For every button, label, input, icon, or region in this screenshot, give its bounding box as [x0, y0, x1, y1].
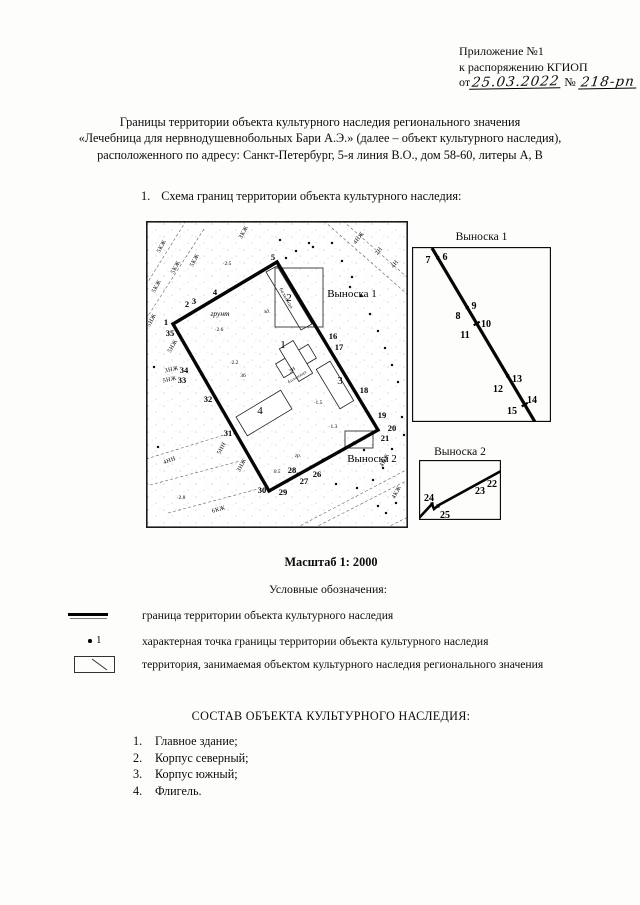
callout2-title: Выноска 2	[419, 446, 501, 458]
boundary-point-marker	[215, 398, 218, 401]
callout-point-label: 12	[493, 384, 503, 395]
callout-point-label: 23	[475, 486, 485, 497]
micro-label: грунт	[210, 309, 230, 318]
boundary-point-marker	[234, 432, 237, 435]
legend-item-point: характерная точка границы территории объ…	[142, 635, 488, 648]
boundary-point-marker	[322, 459, 325, 462]
section-number: 1.	[141, 189, 150, 203]
micro-label: ·2.6	[215, 327, 224, 333]
section-text: Схема границ территории объекта культурн…	[161, 189, 461, 203]
micro-label: ·2.5	[223, 261, 232, 267]
map-symbol-dot	[391, 448, 393, 450]
boundary-point-marker	[276, 261, 279, 264]
map-symbol-dot	[279, 239, 281, 241]
legend-boundary-line-swatch-shadow	[70, 618, 107, 619]
boundary-point-marker	[189, 313, 192, 316]
map-symbol-dot	[395, 502, 397, 504]
boundary-point-marker	[353, 442, 356, 445]
boundary-point-marker	[215, 297, 218, 300]
map-symbol-dot	[369, 313, 371, 315]
map-symbol-dot	[397, 381, 399, 383]
list-item: 2. Корпус северный;	[133, 750, 249, 767]
callout-point-label: 9	[472, 301, 477, 312]
boundary-point-marker	[338, 451, 341, 454]
legend-item-territory: территория, занимаемая объектом культурн…	[142, 658, 543, 671]
boundary-point-marker	[377, 429, 380, 432]
map-point-label: 34	[180, 365, 189, 375]
micro-label: гр.	[295, 453, 301, 459]
map-point-label: 27	[300, 476, 309, 486]
boundary-point-marker	[268, 490, 271, 493]
callout-point-label: 22	[487, 479, 497, 490]
map-symbol-dot	[363, 449, 365, 451]
micro-label: ·1.3	[329, 424, 338, 430]
map-symbol-dot	[401, 416, 403, 418]
map-point-label: 1	[164, 317, 168, 327]
scale-label: Масштаб 1: 2000	[0, 555, 640, 570]
document-title: Границы территории объекта культурного н…	[0, 114, 640, 163]
map-point-label: 19	[378, 410, 387, 420]
appendix-header: Приложение №1 к распоряжению КГИОП от25.…	[459, 44, 637, 91]
micro-label: ·2.8	[177, 495, 186, 501]
building-number-label: 3	[337, 375, 343, 387]
map-point-label: 17	[335, 342, 344, 352]
boundary-point-marker	[436, 256, 439, 259]
map-point-label: 30	[258, 485, 267, 495]
map-point-label: 29	[279, 487, 288, 497]
map-symbol-dot	[295, 250, 297, 252]
boundary-point-marker	[292, 288, 295, 291]
boundary-point-marker	[205, 380, 208, 383]
map-point-label: 32	[204, 394, 213, 404]
boundary-point-marker	[195, 309, 198, 312]
map-point-label: 20	[388, 423, 397, 433]
boundary-point-marker	[303, 306, 306, 309]
map-symbol-dot	[377, 330, 379, 332]
composition-heading: СОСТАВ ОБЪЕКТА КУЛЬТУРНОГО НАСЛЕДИЯ:	[0, 709, 640, 724]
map-point-label: 33	[178, 375, 187, 385]
map-symbol-dot	[385, 512, 387, 514]
scheme-map: 5КЖ5КЖ5КЖ5КЖЗКЖ5НЖ5НЖЗНЖ5НЖ5ННЗНЖ6КЖ4НН4…	[146, 221, 408, 528]
list-item: 4. Флигель.	[133, 783, 249, 800]
callout-point-label: 11	[460, 330, 469, 341]
callout-point-label: 15	[507, 406, 517, 417]
boundary-point-marker	[297, 296, 300, 299]
callout-point-label: 8	[456, 311, 461, 322]
map-point-label: 31	[224, 428, 233, 438]
micro-label: ·2.2	[230, 360, 239, 366]
order-date-number-line: от25.03.2022 № 218-рп	[459, 75, 637, 91]
boundary-point-marker	[179, 335, 182, 338]
boundary-point-marker	[506, 374, 509, 377]
callout-frame	[420, 461, 501, 520]
legend-point-swatch	[88, 639, 92, 643]
building-number-label: 1	[280, 339, 286, 351]
map-point-label: 18	[360, 385, 369, 395]
callout-point-label: 6	[443, 252, 448, 263]
legend-boundary-line-swatch	[68, 613, 108, 616]
map-symbol-dot	[312, 246, 314, 248]
boundary-point-marker	[297, 473, 300, 476]
map-symbol-dot	[356, 487, 358, 489]
map-symbol-dot	[285, 257, 287, 259]
micro-label: ·1.5	[314, 400, 323, 406]
boundary-point-marker	[355, 392, 358, 395]
map-symbol-dot	[331, 242, 333, 244]
map-symbol-dot	[403, 434, 405, 436]
map-symbol-dot	[391, 364, 393, 366]
map-point-label: 35	[166, 328, 175, 338]
callout-boundary-line	[432, 248, 535, 422]
title-line-3: расположенного по адресу: Санкт-Петербур…	[0, 147, 640, 163]
map-point-label: 2	[185, 299, 189, 309]
callout-point-label: 14	[527, 395, 537, 406]
callout-point-label: 24	[424, 493, 434, 504]
boundary-point-marker	[363, 437, 366, 440]
boundary-point-marker	[436, 504, 439, 507]
callout-point-label: 7	[426, 255, 431, 266]
callout-point-label: 13	[512, 374, 522, 385]
map-symbol-dot	[308, 242, 310, 244]
map-symbol-dot	[157, 446, 159, 448]
list-item: 3. Корпус южный;	[133, 766, 249, 783]
handwritten-date: 25.03.2022	[469, 75, 562, 90]
boundary-point-marker	[286, 278, 289, 281]
map-point-label: 26	[313, 469, 322, 479]
number-sign: №	[564, 75, 575, 89]
map-symbol-dot	[351, 276, 353, 278]
micro-label: 36	[240, 373, 246, 379]
boundary-point-marker	[197, 366, 200, 369]
boundary-point-marker	[329, 349, 332, 352]
boundary-point-marker	[310, 466, 313, 469]
callout2-box: 22232425	[419, 460, 501, 520]
callout-label-on-map: Выноска 1	[327, 288, 377, 300]
map-point-label: 21	[381, 433, 390, 443]
building-number-label: 2	[286, 292, 292, 304]
title-line-1: Границы территории объекта культурного н…	[0, 114, 640, 130]
map-symbol-dot	[372, 479, 374, 481]
legend-item-boundary: граница территории объекта культурного н…	[142, 609, 393, 622]
building-number-label: 4	[257, 405, 263, 417]
map-symbol-dot	[384, 347, 386, 349]
boundary-point-marker	[367, 412, 370, 415]
boundary-point-marker	[323, 339, 326, 342]
callout-point-label: 10	[481, 319, 491, 330]
callout-point-label: 25	[440, 510, 450, 520]
legend-territory-swatch	[74, 656, 115, 673]
boundary-point-marker	[286, 480, 289, 483]
micro-label: зд.	[263, 308, 270, 315]
callout1-box: 6789101112131415	[412, 247, 551, 422]
callout1-title: Выноска 1	[412, 231, 551, 243]
boundary-point-marker	[466, 306, 469, 309]
micro-label: 0.5	[274, 469, 281, 475]
map-symbol-dot	[335, 483, 337, 485]
title-line-2: «Лечебница для нервнодушевнобольных Бари…	[0, 130, 640, 146]
map-symbol-dot	[377, 505, 379, 507]
legend-point-number: 1	[96, 634, 102, 646]
map-point-label: 16	[329, 331, 338, 341]
map-symbol-dot	[153, 366, 155, 368]
list-item: 1. Главное здание;	[133, 733, 249, 750]
section-1-heading: 1.Схема границ территории объекта культу…	[141, 189, 461, 204]
document-page: { "header": { "line1": "Приложение №1", …	[0, 0, 640, 905]
appendix-title: Приложение №1	[459, 44, 637, 60]
boundary-point-marker	[172, 323, 175, 326]
map-point-label: 3	[192, 296, 196, 306]
handwritten-number: 218-рп	[578, 75, 637, 89]
map-point-label: 28	[288, 465, 297, 475]
composition-list: 1. Главное здание; 2. Корпус северный; 3…	[133, 733, 249, 799]
map-point-label: 5	[271, 252, 275, 262]
callout-label-on-map: Выноска 2	[347, 453, 397, 465]
legend-heading: Условные обозначения:	[0, 582, 640, 597]
map-symbol-dot	[341, 260, 343, 262]
